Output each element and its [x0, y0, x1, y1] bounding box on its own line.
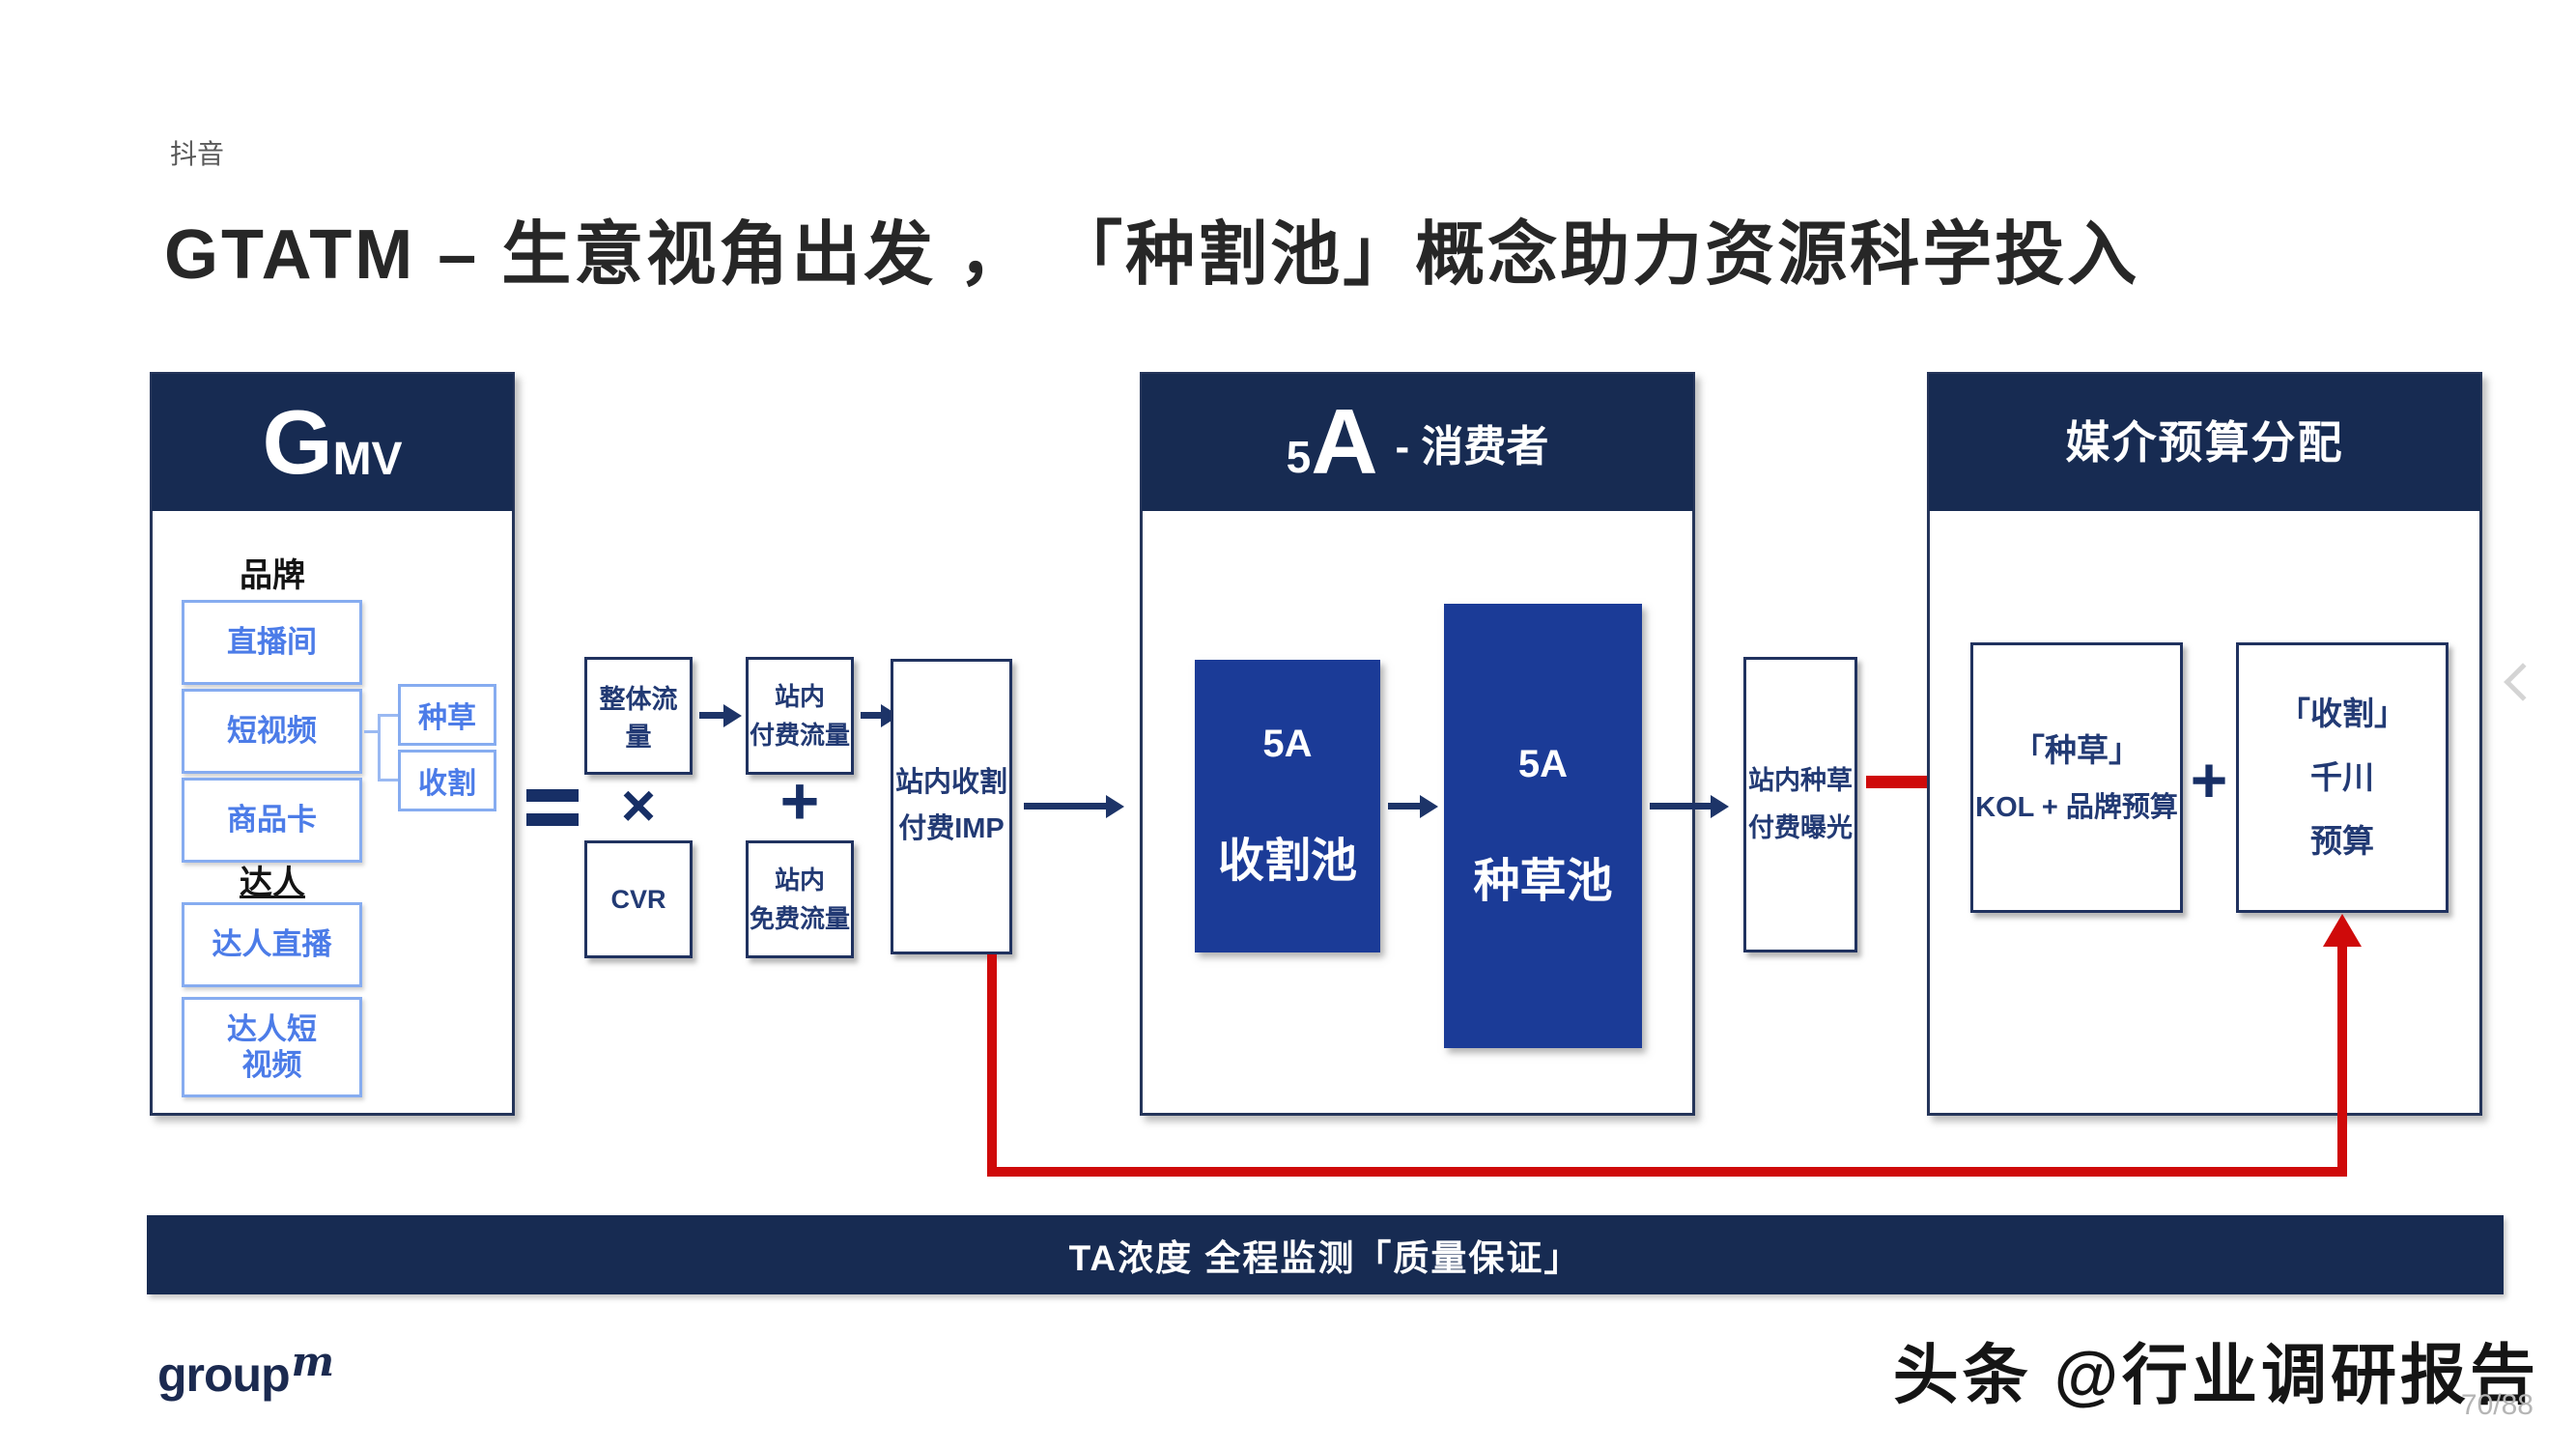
- budget-header-label: 媒介预算分配: [2066, 374, 2344, 511]
- platform-tag: 抖音: [170, 133, 224, 172]
- free-traffic-line2: 免费流量: [750, 899, 850, 938]
- arrow-seedpool-to-exposure: [1650, 803, 1712, 810]
- arrow-total-to-paid: [699, 712, 724, 719]
- channel-short-video: 短视频: [182, 689, 362, 774]
- bracket-connector: [378, 779, 399, 781]
- tag-harvesting: 收割: [398, 750, 496, 811]
- paid-traffic-box: 站内 付费流量: [746, 657, 854, 775]
- quality-assurance-band: TA浓度 全程监测「质量保证」: [147, 1215, 2504, 1294]
- seed-exposure-line2: 付费曝光: [1748, 805, 1853, 852]
- plus-operator-traffic: +: [765, 767, 835, 835]
- consumer-header-suffix: - 消费者: [1396, 412, 1549, 473]
- harvest-pool-name: 收割池: [1218, 822, 1357, 890]
- equals-operator: [526, 789, 579, 826]
- talent-section-label: 达人: [153, 856, 392, 903]
- red-feedback-line-across: [987, 1167, 2347, 1177]
- paid-traffic-line2: 付费流量: [750, 716, 850, 754]
- slide: 抖音 GTATM – 生意视角出发 ， 「种割池」概念助力资源科学投入 G MV…: [0, 0, 2576, 1449]
- harvest-budget-line1: 「收割」: [2279, 682, 2406, 746]
- page-title: GTATM – 生意视角出发 ， 「种割池」概念助力资源科学投入: [164, 197, 2139, 298]
- seed-pool-5a: 5A: [1518, 743, 1568, 786]
- bracket-connector: [378, 714, 399, 717]
- cvr-box: CVR: [584, 840, 693, 958]
- gmv-header-sub: MV: [333, 433, 403, 486]
- harvest-budget-line2: 千川: [2310, 746, 2374, 810]
- seed-exposure-line1: 站内种草: [1748, 757, 1853, 805]
- tag-seeding: 种草: [398, 684, 496, 746]
- page-indicator: 70/88: [2461, 1389, 2534, 1422]
- seed-exposure-box: 站内种草 付费曝光: [1743, 657, 1857, 952]
- chevron-left-icon[interactable]: [2504, 663, 2542, 701]
- harvest-imp-line1: 站内收割: [895, 760, 1007, 807]
- plus-operator-budget: +: [2174, 748, 2244, 811]
- budget-panel-header: 媒介预算分配: [1929, 374, 2480, 511]
- harvest-imp-box: 站内收割 付费IMP: [891, 659, 1012, 954]
- harvest-budget-line3: 预算: [2310, 810, 2374, 873]
- groupm-logo-m: m: [292, 1338, 333, 1385]
- brand-section-label: 品牌: [153, 549, 392, 596]
- cvr-label: CVR: [610, 885, 665, 915]
- harvest-budget-box: 「收割」 千川 预算: [2236, 642, 2449, 913]
- free-traffic-box: 站内 免费流量: [746, 840, 854, 958]
- seed-pool: 5A 种草池: [1444, 604, 1642, 1048]
- consumer-panel-header: 5 A - 消费者: [1142, 374, 1693, 511]
- gmv-panel: G MV 品牌 直播间 短视频 商品卡 种草 收割 达人 达人直播 达人短视频: [150, 372, 515, 1116]
- arrow-harvest-to-seed-pool: [1388, 803, 1421, 810]
- red-arrow-exposure-to-budget: [1866, 776, 1934, 788]
- seed-budget-box: 「种草」 KOL + 品牌预算: [1970, 642, 2183, 913]
- paid-traffic-line1: 站内: [775, 677, 825, 716]
- seed-pool-name: 种草池: [1473, 842, 1612, 910]
- seed-budget-line1: 「种草」: [2013, 721, 2140, 781]
- consumer-header-5: 5: [1287, 431, 1312, 483]
- red-feedback-arrowhead: [2323, 914, 2362, 947]
- red-feedback-line-up: [2337, 943, 2347, 1177]
- watermark: 头条 @行业调研报告: [1893, 1321, 2539, 1417]
- gmv-panel-header: G MV: [152, 374, 513, 511]
- harvest-pool: 5A 收割池: [1195, 660, 1380, 952]
- bracket-connector: [364, 730, 379, 733]
- harvest-pool-5a: 5A: [1262, 723, 1312, 766]
- arrow-imp-to-consumer: [1024, 803, 1107, 810]
- groupm-logo: groupm: [157, 1338, 333, 1403]
- groupm-logo-text: group: [157, 1348, 290, 1402]
- channel-talent-live: 达人直播: [182, 902, 362, 987]
- free-traffic-line1: 站内: [775, 861, 825, 899]
- channel-live-room: 直播间: [182, 600, 362, 685]
- harvest-imp-line2: 付费IMP: [898, 807, 1005, 853]
- total-traffic-label: 整体流量: [587, 678, 690, 753]
- bracket-connector: [378, 714, 381, 781]
- gmv-header-main: G: [262, 374, 332, 511]
- channel-product-card: 商品卡: [182, 778, 362, 863]
- consumer-header-a: A: [1311, 374, 1377, 511]
- arrow-paid-to-imp: [861, 712, 882, 719]
- channel-talent-short-video: 达人短视频: [182, 997, 362, 1097]
- red-feedback-line-down: [987, 954, 997, 1177]
- seed-budget-line2: KOL + 品牌预算: [1975, 781, 2178, 835]
- multiply-operator: ×: [604, 777, 673, 837]
- total-traffic-box: 整体流量: [584, 657, 693, 775]
- quality-assurance-label: TA浓度 全程监测「质量保证」: [1069, 1229, 1582, 1281]
